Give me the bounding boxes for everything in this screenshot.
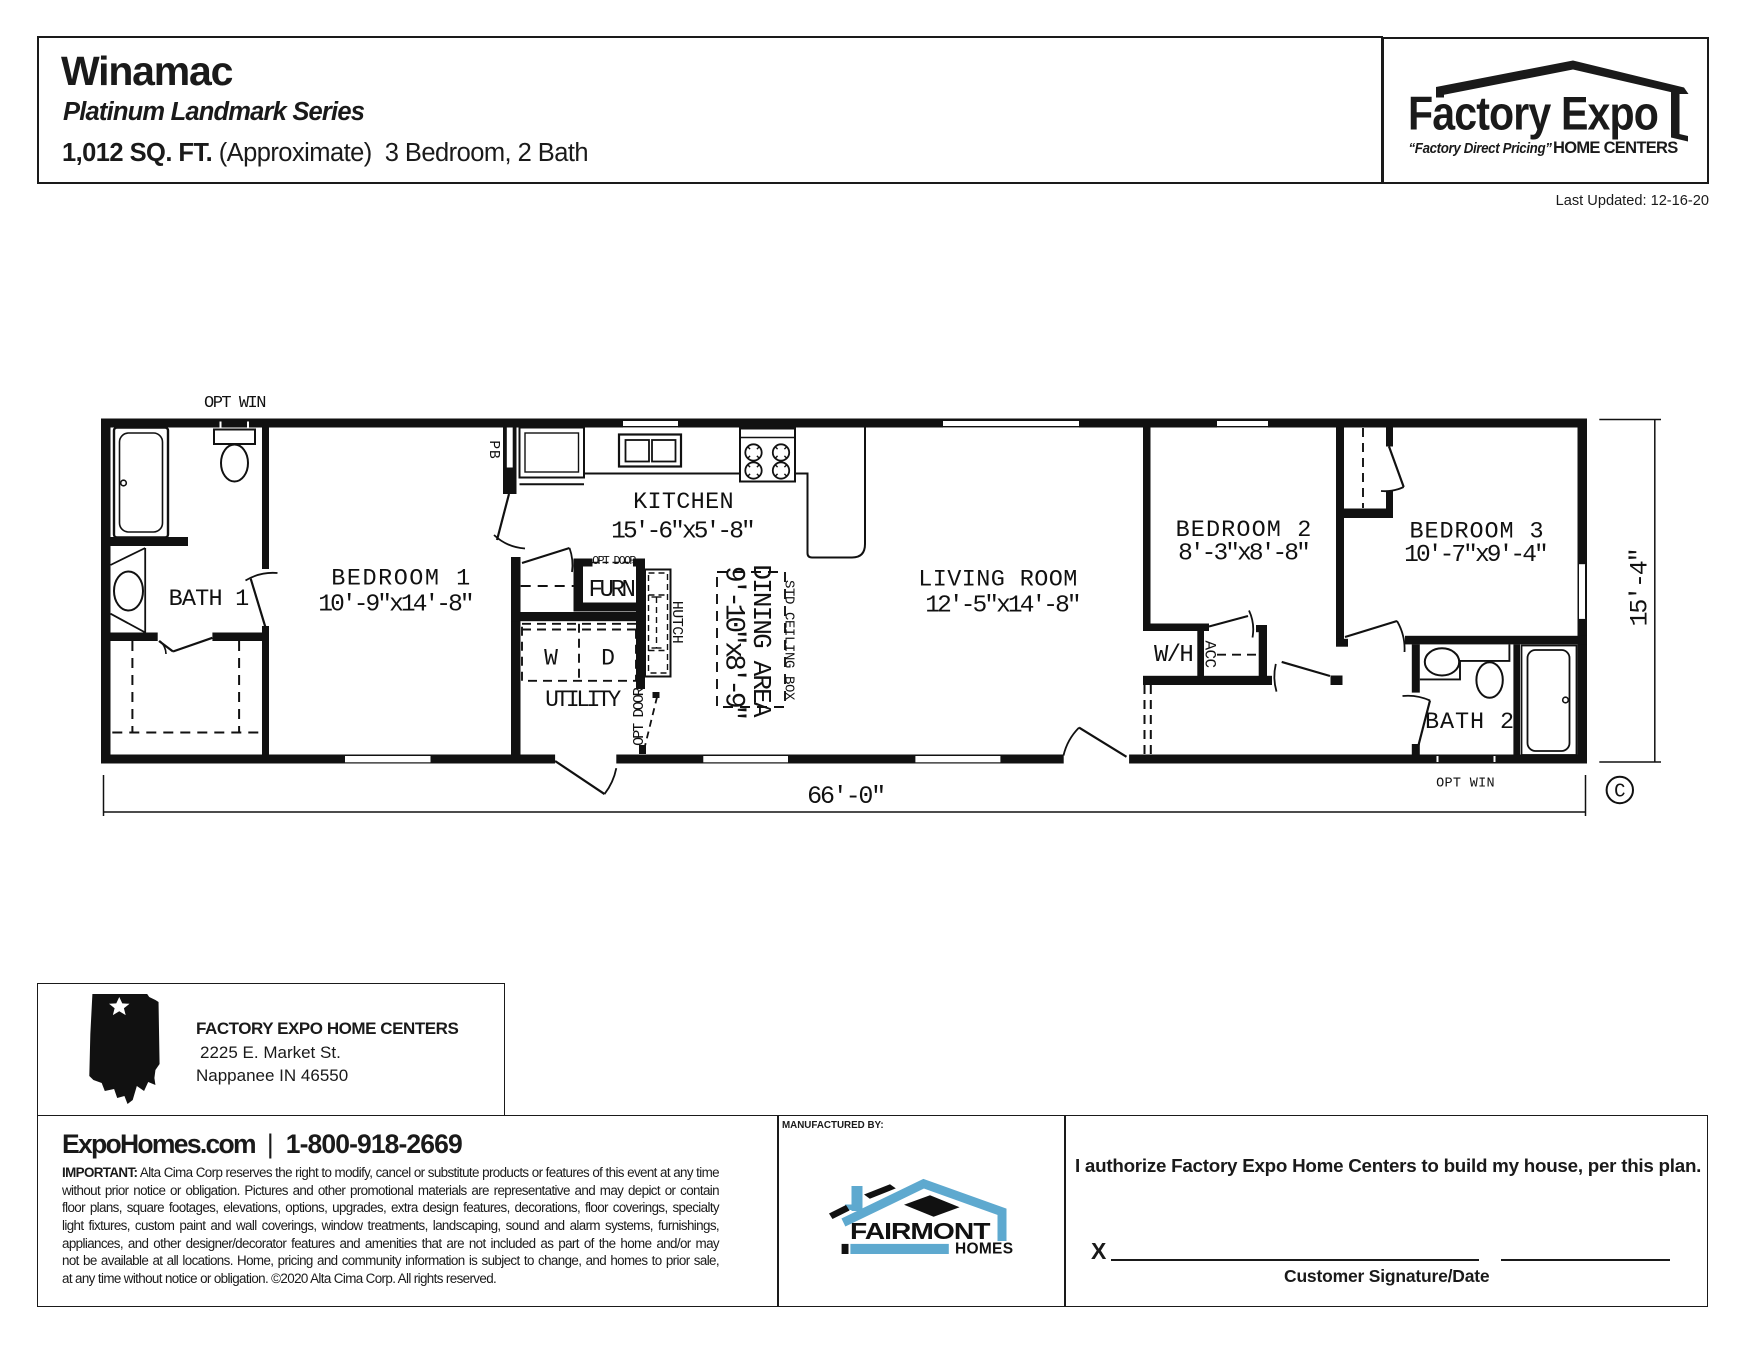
- svg-text:66'-0": 66'-0": [807, 782, 884, 811]
- svg-text:10'-9"x14'-8": 10'-9"x14'-8": [318, 592, 472, 619]
- svg-text:PB: PB: [485, 440, 501, 459]
- svg-text:BATH 2: BATH 2: [1425, 709, 1515, 736]
- svg-text:DINING AREA: DINING AREA: [746, 564, 776, 718]
- svg-text:UTILITY: UTILITY: [545, 687, 621, 713]
- svg-text:OPT DOOR: OPT DOOR: [631, 687, 648, 746]
- svg-text:KITCHEN: KITCHEN: [633, 489, 734, 516]
- svg-text:OPT WIN: OPT WIN: [1436, 777, 1495, 792]
- svg-text:HOMES: HOMES: [955, 1241, 1013, 1258]
- svg-text:OPT WIN: OPT WIN: [204, 394, 265, 413]
- svg-text:10'-7"x9'-4": 10'-7"x9'-4": [1404, 542, 1546, 569]
- svg-text:9'-10"x8'-9": 9'-10"x8'-9": [718, 566, 749, 718]
- svg-text:ACC: ACC: [1201, 640, 1219, 667]
- svg-text:8'-3"x8'-8": 8'-3"x8'-8": [1178, 541, 1308, 568]
- svg-text:15'-6"x5'-8": 15'-6"x5'-8": [611, 519, 753, 546]
- svg-text:BEDROOM 1: BEDROOM 1: [331, 566, 471, 593]
- svg-text:STD CEILING BOX: STD CEILING BOX: [781, 580, 797, 701]
- svg-text:W/H: W/H: [1154, 642, 1192, 669]
- svg-text:BATH 1: BATH 1: [169, 586, 249, 613]
- svg-text:FURN: FURN: [588, 577, 634, 604]
- svg-text:12'-5"x14'-8": 12'-5"x14'-8": [925, 593, 1079, 620]
- svg-text:C: C: [1614, 781, 1625, 803]
- svg-text:W: W: [544, 646, 558, 672]
- svg-text:D: D: [601, 646, 615, 672]
- svg-text:LIVING ROOM: LIVING ROOM: [918, 567, 1078, 594]
- svg-text:HUTCH: HUTCH: [668, 601, 685, 644]
- svg-text:15'-4": 15'-4": [1626, 550, 1655, 627]
- svg-text:OPT DOOR: OPT DOOR: [592, 555, 636, 568]
